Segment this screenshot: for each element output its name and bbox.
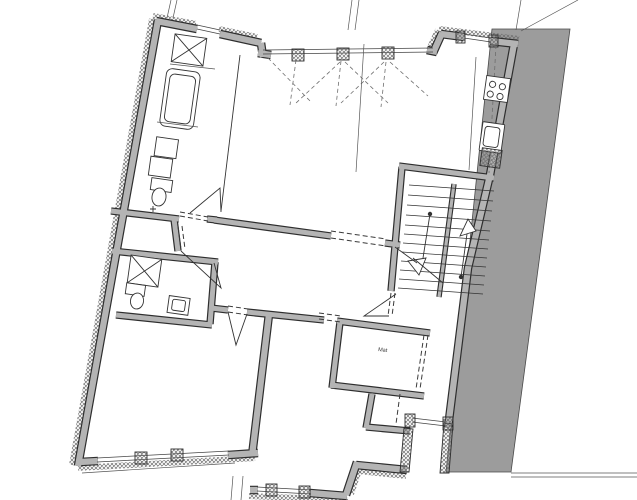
washer-icons [148, 136, 178, 178]
floor-plan-drawing: Mat [0, 0, 637, 500]
partition-line [221, 55, 240, 211]
sink-icon [167, 296, 190, 316]
pantry-room-label: Mat [378, 347, 388, 354]
stove-icon [483, 75, 510, 102]
floor-plan-page: Mat [0, 0, 637, 500]
shower-icon [127, 255, 162, 287]
kitchen-floor-divider-line [356, 44, 364, 172]
floor-drain-icon [150, 206, 156, 212]
light-shaft-walls [400, 423, 453, 473]
shower-icon [171, 34, 207, 66]
ceiling-slope-marks [268, 58, 428, 107]
bathtub-icon [159, 68, 201, 130]
dishwasher-icon [480, 148, 502, 169]
bathroom-1 [148, 34, 240, 212]
toilet-icon [150, 178, 173, 212]
counter-edge-line [469, 57, 476, 170]
toilet-icon [125, 283, 145, 310]
bathroom-2 [125, 255, 190, 315]
